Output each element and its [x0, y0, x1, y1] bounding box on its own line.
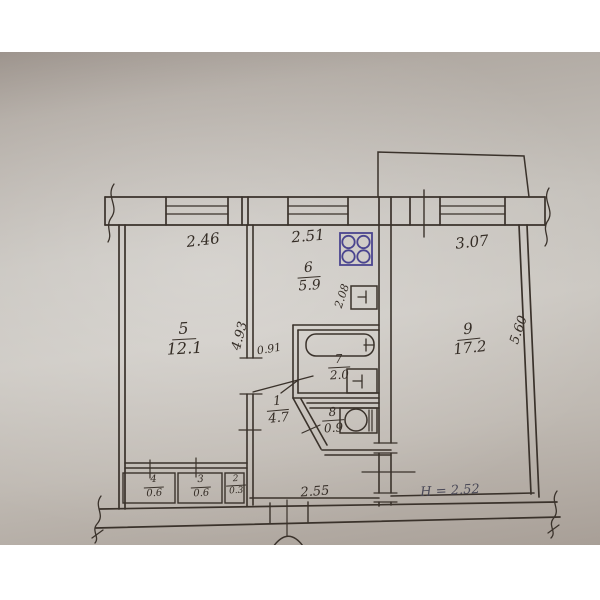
dimension-top-middle: 2.51: [291, 226, 326, 247]
door-swing-icon: [253, 376, 313, 393]
room-area: 12.1: [166, 339, 203, 359]
toilet-icon: [340, 408, 377, 433]
room-5-label: 5 12.1: [165, 320, 202, 358]
closet-4-label: 4 0.6: [143, 474, 165, 499]
dimension-bottom: 2.55: [300, 484, 330, 501]
room-9-label: 9 17.2: [451, 320, 488, 358]
stove-icon: [340, 233, 372, 265]
room-area: 5.9: [298, 277, 321, 294]
washbasin-icon: [347, 369, 377, 393]
room-number: 7: [327, 352, 349, 368]
kitchen-sink-icon: [351, 286, 377, 309]
floor-plan-drawing: [0, 0, 600, 600]
window-icon: [166, 206, 505, 214]
closet-3-label: 3 0.6: [190, 474, 212, 499]
room-number: 4: [143, 474, 164, 488]
dimension-top-right: 3.07: [454, 231, 489, 252]
room-area: 17.2: [452, 338, 487, 358]
floor-plan-photo: 5 12.1 6 5.9 9 17.2 7 2.0 1 4.7 8 0.9 4 …: [0, 0, 600, 600]
room-area: 2.0: [329, 367, 349, 382]
room-7-label: 7 2.0: [327, 352, 350, 381]
photo-top-border: [0, 0, 600, 52]
room-area: 4.7: [268, 410, 290, 426]
room-area: 0.6: [146, 487, 162, 499]
room-number: 3: [190, 474, 211, 488]
room-number: 5: [171, 320, 196, 340]
room-number: 6: [296, 260, 320, 278]
room-area: 0.3: [229, 486, 244, 497]
room-6-label: 6 5.9: [296, 260, 321, 294]
balcony-outline: [378, 152, 529, 197]
room-area: 0.6: [193, 487, 209, 499]
room-number: 8: [321, 405, 344, 421]
room-8-label: 8 0.9: [321, 405, 345, 435]
room-area: 0.9: [324, 420, 344, 435]
closet-2-label: 2 0.3: [226, 475, 247, 498]
photo-bottom-border: [0, 545, 600, 600]
room-1-label: 1 4.7: [266, 394, 291, 426]
ceiling-height-note: H = 2.52: [420, 482, 480, 500]
